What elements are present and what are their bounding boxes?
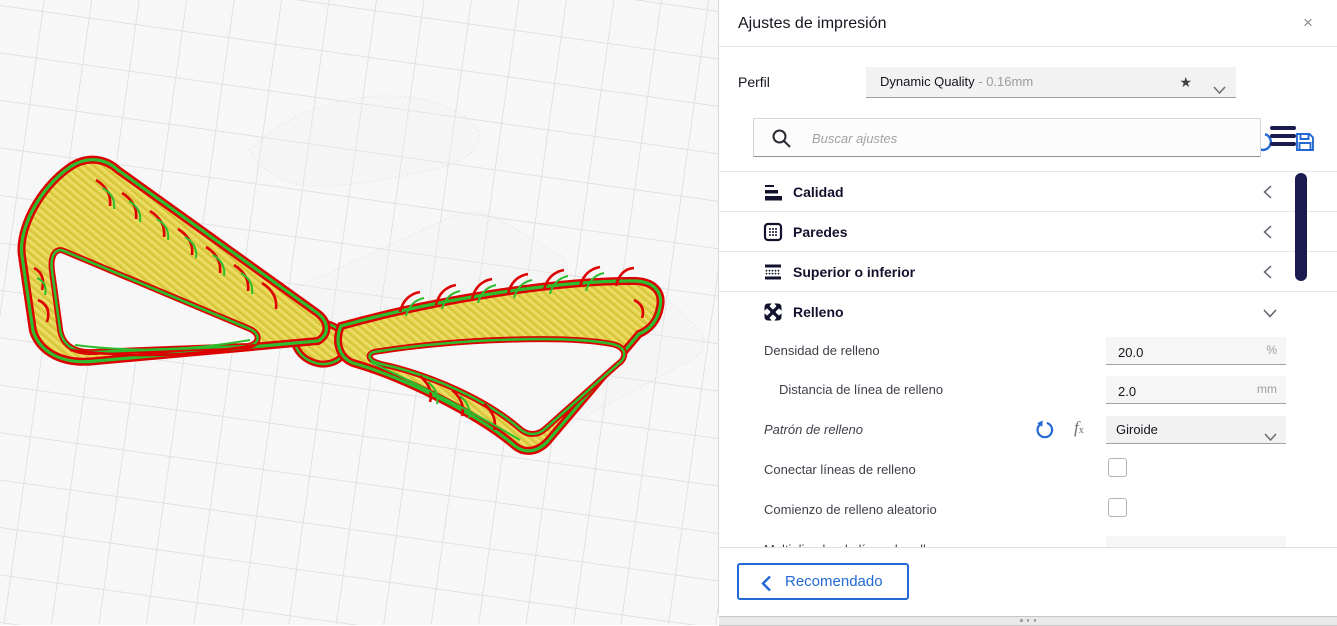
setting-label: Conectar líneas de relleno <box>764 450 916 490</box>
viewport-3d[interactable] <box>0 0 718 625</box>
search-icon <box>771 128 792 149</box>
setting-label: Distancia de línea de relleno <box>779 370 943 410</box>
chevron-left-icon <box>1263 265 1272 284</box>
category-infill[interactable]: Relleno <box>719 291 1337 331</box>
setting-label: Patrón de relleno <box>764 410 863 450</box>
chevron-left-icon <box>1263 185 1272 204</box>
category-label: Relleno <box>793 292 844 332</box>
category-walls[interactable]: Paredes <box>719 211 1337 251</box>
category-label: Calidad <box>793 172 844 212</box>
drag-dots-icon <box>1020 619 1036 622</box>
category-label: Paredes <box>793 212 847 252</box>
connect-infill-checkbox[interactable] <box>1108 458 1127 477</box>
unit-label: mm <box>1257 376 1277 403</box>
panel-title-bar: Ajustes de impresión × <box>719 0 1337 47</box>
infill-icon <box>763 302 783 327</box>
favorite-star-icon: ★ <box>1179 67 1192 97</box>
chevron-left-icon <box>761 575 772 592</box>
recommended-label: Recomendado <box>785 565 883 598</box>
panel-scrollbar[interactable] <box>1295 173 1307 281</box>
setting-infill-line-distance: Distancia de línea de relleno mm <box>719 370 1337 410</box>
search-box <box>753 118 1261 157</box>
random-infill-checkbox[interactable] <box>1108 498 1127 517</box>
infill-pattern-select[interactable]: Giroide <box>1106 416 1286 444</box>
close-icon[interactable]: × <box>1297 12 1319 34</box>
quality-icon <box>763 182 783 207</box>
infill-line-multiplier-field[interactable] <box>1106 536 1286 547</box>
setting-list: Calidad Paredes <box>719 170 1337 547</box>
chevron-left-icon <box>1263 225 1272 244</box>
profile-value: Dynamic Quality <box>880 74 975 89</box>
profile-dropdown[interactable]: Dynamic Quality - 0.16mm ★ <box>866 67 1236 98</box>
print-settings-panel: Ajustes de impresión × Perfil Dynamic Qu… <box>718 0 1337 614</box>
setting-label: Comienzo de relleno aleatorio <box>764 490 937 530</box>
setting-infill-line-multiplier: Multiplicador de línea de relleno <box>719 530 1337 547</box>
setting-label: Multiplicador de línea de relleno <box>764 530 948 547</box>
unit-label: % <box>1266 337 1277 364</box>
infill-pattern-value: Giroide <box>1116 422 1158 437</box>
chevron-down-icon <box>1263 305 1277 323</box>
profile-detail: - 0.16mm <box>975 74 1034 89</box>
profile-label: Perfil <box>738 67 770 98</box>
chevron-down-icon <box>1213 76 1226 106</box>
setting-infill-pattern: Patrón de relleno fx Giroide <box>719 410 1337 450</box>
model-left-lens <box>21 160 326 362</box>
category-top-bottom[interactable]: Superior o inferior <box>719 251 1337 291</box>
infill-line-distance-field[interactable]: mm <box>1106 376 1286 404</box>
walls-icon <box>763 222 783 247</box>
recommended-button[interactable]: Recomendado <box>737 563 909 600</box>
settings-menu-icon[interactable] <box>1270 126 1298 148</box>
panel-title: Ajustes de impresión <box>738 0 887 47</box>
setting-label: Densidad de relleno <box>764 331 880 371</box>
setting-random-infill-start: Comienzo de relleno aleatorio <box>719 490 1337 530</box>
profile-row: Perfil Dynamic Quality - 0.16mm ★ <box>719 60 1337 106</box>
model-glasses[interactable] <box>0 0 718 625</box>
infill-density-input[interactable] <box>1116 339 1240 365</box>
category-label: Superior o inferior <box>793 252 915 292</box>
category-quality[interactable]: Calidad <box>719 171 1337 211</box>
panel-footer: Recomendado <box>719 547 1337 614</box>
setting-connect-infill-lines: Conectar líneas de relleno <box>719 450 1337 490</box>
search-input[interactable] <box>810 119 1254 158</box>
infill-line-distance-input[interactable] <box>1116 378 1240 404</box>
reset-setting-icon[interactable] <box>1035 420 1055 445</box>
chevron-down-icon <box>1264 424 1277 451</box>
top-bottom-icon <box>763 262 783 287</box>
formula-fx-icon[interactable]: fx <box>1074 418 1084 438</box>
infill-density-field[interactable]: % <box>1106 337 1286 365</box>
setting-infill-density: Densidad de relleno % <box>719 331 1337 371</box>
